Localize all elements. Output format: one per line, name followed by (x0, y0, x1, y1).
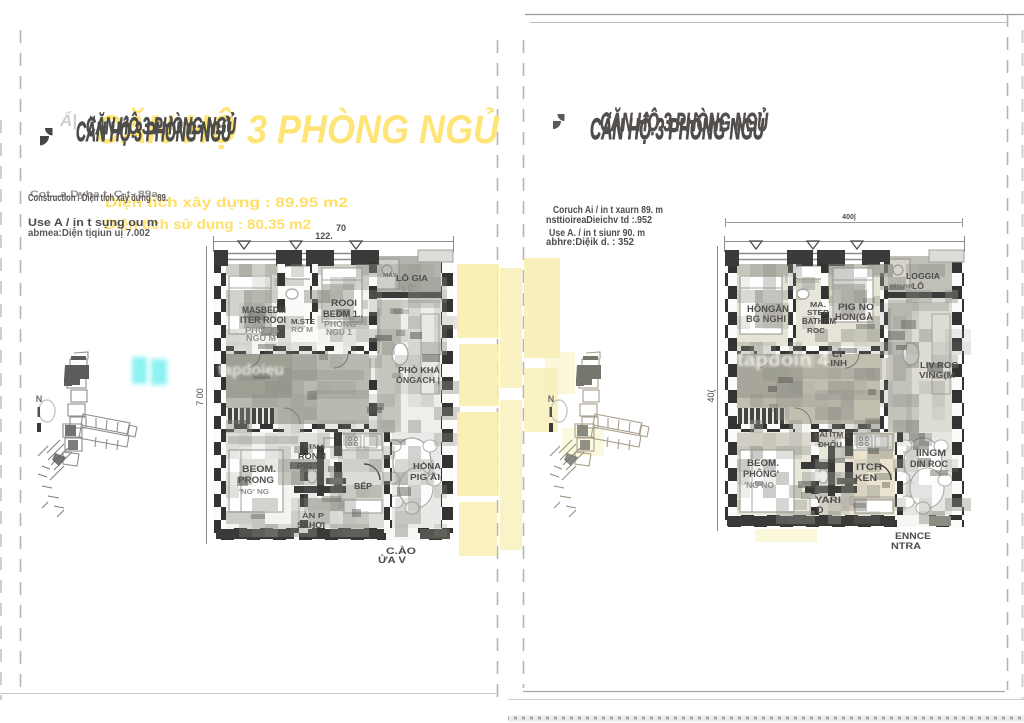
svg-text:40(: 40( (706, 389, 716, 402)
svg-text:SẢHƠI: SẢHƠI (297, 521, 325, 530)
svg-text:LOGGIA: LOGGIA (906, 272, 940, 281)
svg-text:LÔ: LÔ (912, 282, 924, 291)
svg-text:'NG NO: 'NG NO (744, 481, 774, 490)
svg-text:RONM: RONM (298, 451, 326, 461)
svg-text:BEOM.: BEOM. (747, 458, 779, 468)
svg-text:ỬA V: ỬA V (378, 554, 407, 566)
svg-text:BEDM 1..: BEDM 1.. (323, 309, 363, 320)
svg-text:tapdoin 4: tapdoin 4 (737, 350, 829, 371)
svg-text:BG NGHI: BG NGHI (746, 314, 786, 324)
svg-text:ITER ROOI: ITER ROOI (240, 315, 286, 326)
svg-text:ATMA: ATMA (303, 444, 325, 451)
svg-text:400|: 400| (842, 214, 856, 221)
svg-text:LIV ROC: LIV ROC (920, 360, 958, 370)
svg-text:PIG NO: PIG NO (838, 302, 874, 312)
svg-text:LÔ GIA: LÔ GIA (396, 272, 428, 283)
svg-text:RO`M: RO`M (291, 327, 313, 334)
svg-text:PRONG: PRONG (238, 475, 274, 486)
svg-text:BATHRM: BATHRM (802, 317, 836, 326)
svg-text:M.STE: M.STE (291, 319, 315, 326)
svg-text:ROC: ROC (807, 326, 826, 335)
svg-text:ÀN P: ÀN P (302, 511, 324, 520)
svg-text:D: D (817, 505, 824, 516)
svg-text:PIG T(: PIG T( (297, 462, 323, 471)
svg-text:tapdoieu: tapdoieu (218, 362, 284, 379)
svg-text:CI: CI (832, 350, 842, 359)
svg-text:Ấ|: Ấ| (59, 111, 77, 130)
svg-text:abmea:Diện tịqiun uị 7.002: abmea:Diện tịqiun uị 7.002 (28, 228, 150, 239)
svg-text:'NG' NG: 'NG' NG (239, 487, 269, 496)
svg-text:KEN: KEN (855, 473, 877, 484)
svg-text:VING(M: VING(M (919, 370, 955, 380)
svg-text:VẢI ITM 1: VẢI ITM 1 (814, 430, 850, 439)
svg-text:CĂN HỘ 3 PHÒNG NGỦ: CĂN HỘ 3 PHÒNG NGỦ (86, 112, 236, 140)
svg-text:MÁY: MÁY (383, 272, 397, 279)
svg-text:STER: STER (807, 308, 830, 317)
svg-text:NGỦ M: NGỦ M (246, 334, 276, 343)
svg-text:nsttioireaDieichv td :.952: nsttioireaDieichv td :.952 (546, 215, 652, 226)
svg-text:-INH: -INH (827, 359, 847, 368)
svg-text:HÒNA: HÒNA (413, 460, 441, 471)
svg-text:ROOI: ROOI (331, 298, 357, 309)
svg-text:ĐHỘU: ĐHỘU (818, 440, 842, 449)
svg-text:PIG ĂI: PIG ĂI (410, 472, 440, 482)
svg-text:BEOM.: BEOM. (242, 464, 276, 475)
svg-text:PHÔNG': PHÔNG' (743, 468, 779, 479)
svg-text:IINGM: IINGM (916, 448, 946, 458)
svg-text:CĂN HỘ 3 PHÒNG NGỦ: CĂN HỘ 3 PHÒNG NGỦ (600, 107, 769, 137)
svg-text:ITCH: ITCH (856, 462, 882, 473)
svg-text:abhre:Diệik d. : 352: abhre:Diệik d. : 352 (546, 237, 634, 248)
svg-text:PHÒ KHÁ: PHÒ KHÁ (398, 364, 440, 375)
svg-text:LÔ: LÔ (402, 284, 414, 293)
svg-text:BẾP: BẾP (354, 481, 372, 491)
svg-text:HON(GẦ: HON(GẦ (835, 312, 874, 322)
svg-text:ÒNGACH |: ÒNGACH | (396, 374, 440, 385)
svg-text:7 00: 7 00 (195, 388, 205, 406)
svg-text:MÁY.LANH: MÁY.LANH (890, 283, 912, 290)
svg-text:DIN ROC: DIN ROC (910, 459, 949, 469)
svg-text:70: 70 (336, 223, 346, 233)
svg-text:NGỦ 1: NGỦ 1 (326, 328, 353, 337)
svg-text:HÔNGẦN: HÔNGẦN (747, 303, 789, 314)
svg-text:NTRA: NTRA (891, 541, 921, 552)
svg-text:122.: 122. (315, 231, 333, 241)
svg-text:Construction / Diện tích xây d: Construction / Diện tích xây dựng : 89. (28, 193, 168, 204)
